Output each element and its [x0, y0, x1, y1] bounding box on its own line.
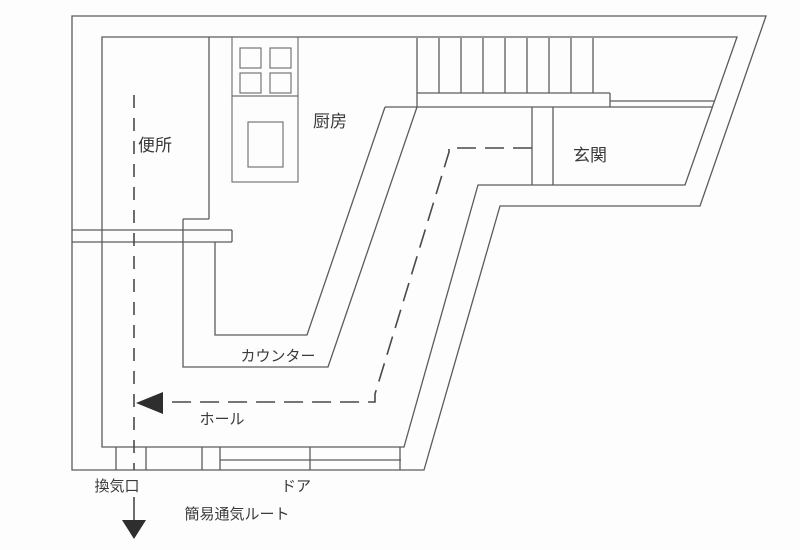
floor-plan-drawing: 便所 厨房 玄関 カウンター ホール 換気口 ドア 簡易通気ルート: [0, 0, 800, 550]
entrance-label: 玄関: [573, 146, 607, 166]
burner-icon: [270, 73, 291, 93]
staircase: [417, 38, 714, 107]
stove-unit: [232, 37, 298, 96]
counter-outer-edge: [183, 107, 417, 367]
floor-plan: 便所 厨房 玄関 カウンター ホール 換気口 ドア 簡易通気ルート: [0, 0, 800, 550]
vent-label: 換気口: [94, 477, 139, 495]
door-label: ドア: [281, 477, 311, 495]
flow-down-arrow-icon: [122, 520, 146, 539]
burner-icon: [240, 73, 261, 93]
kitchen-worktop-unit: [232, 96, 298, 182]
route-caption: 簡易通気ルート: [184, 505, 289, 523]
counter: [183, 107, 417, 367]
kitchen-fixtures: [232, 37, 298, 182]
kitchen-label: 厨房: [313, 112, 347, 132]
counter-inner-edge: [215, 107, 385, 335]
burner-icon: [240, 48, 261, 68]
entrance-partition: [532, 107, 553, 185]
bottom-wall-details: [116, 447, 401, 470]
flow-left-arrow-icon: [136, 392, 163, 414]
labels: 便所 厨房 玄関 カウンター ホール 換気口 ドア 簡易通気ルート: [94, 112, 607, 523]
hall-label: ホール: [199, 410, 244, 428]
burner-icon: [270, 48, 291, 68]
route-entrance-dashed: [164, 148, 532, 402]
toilet-label: 便所: [138, 136, 172, 156]
counter-label: カウンター: [240, 347, 315, 365]
sink-icon: [248, 122, 283, 167]
